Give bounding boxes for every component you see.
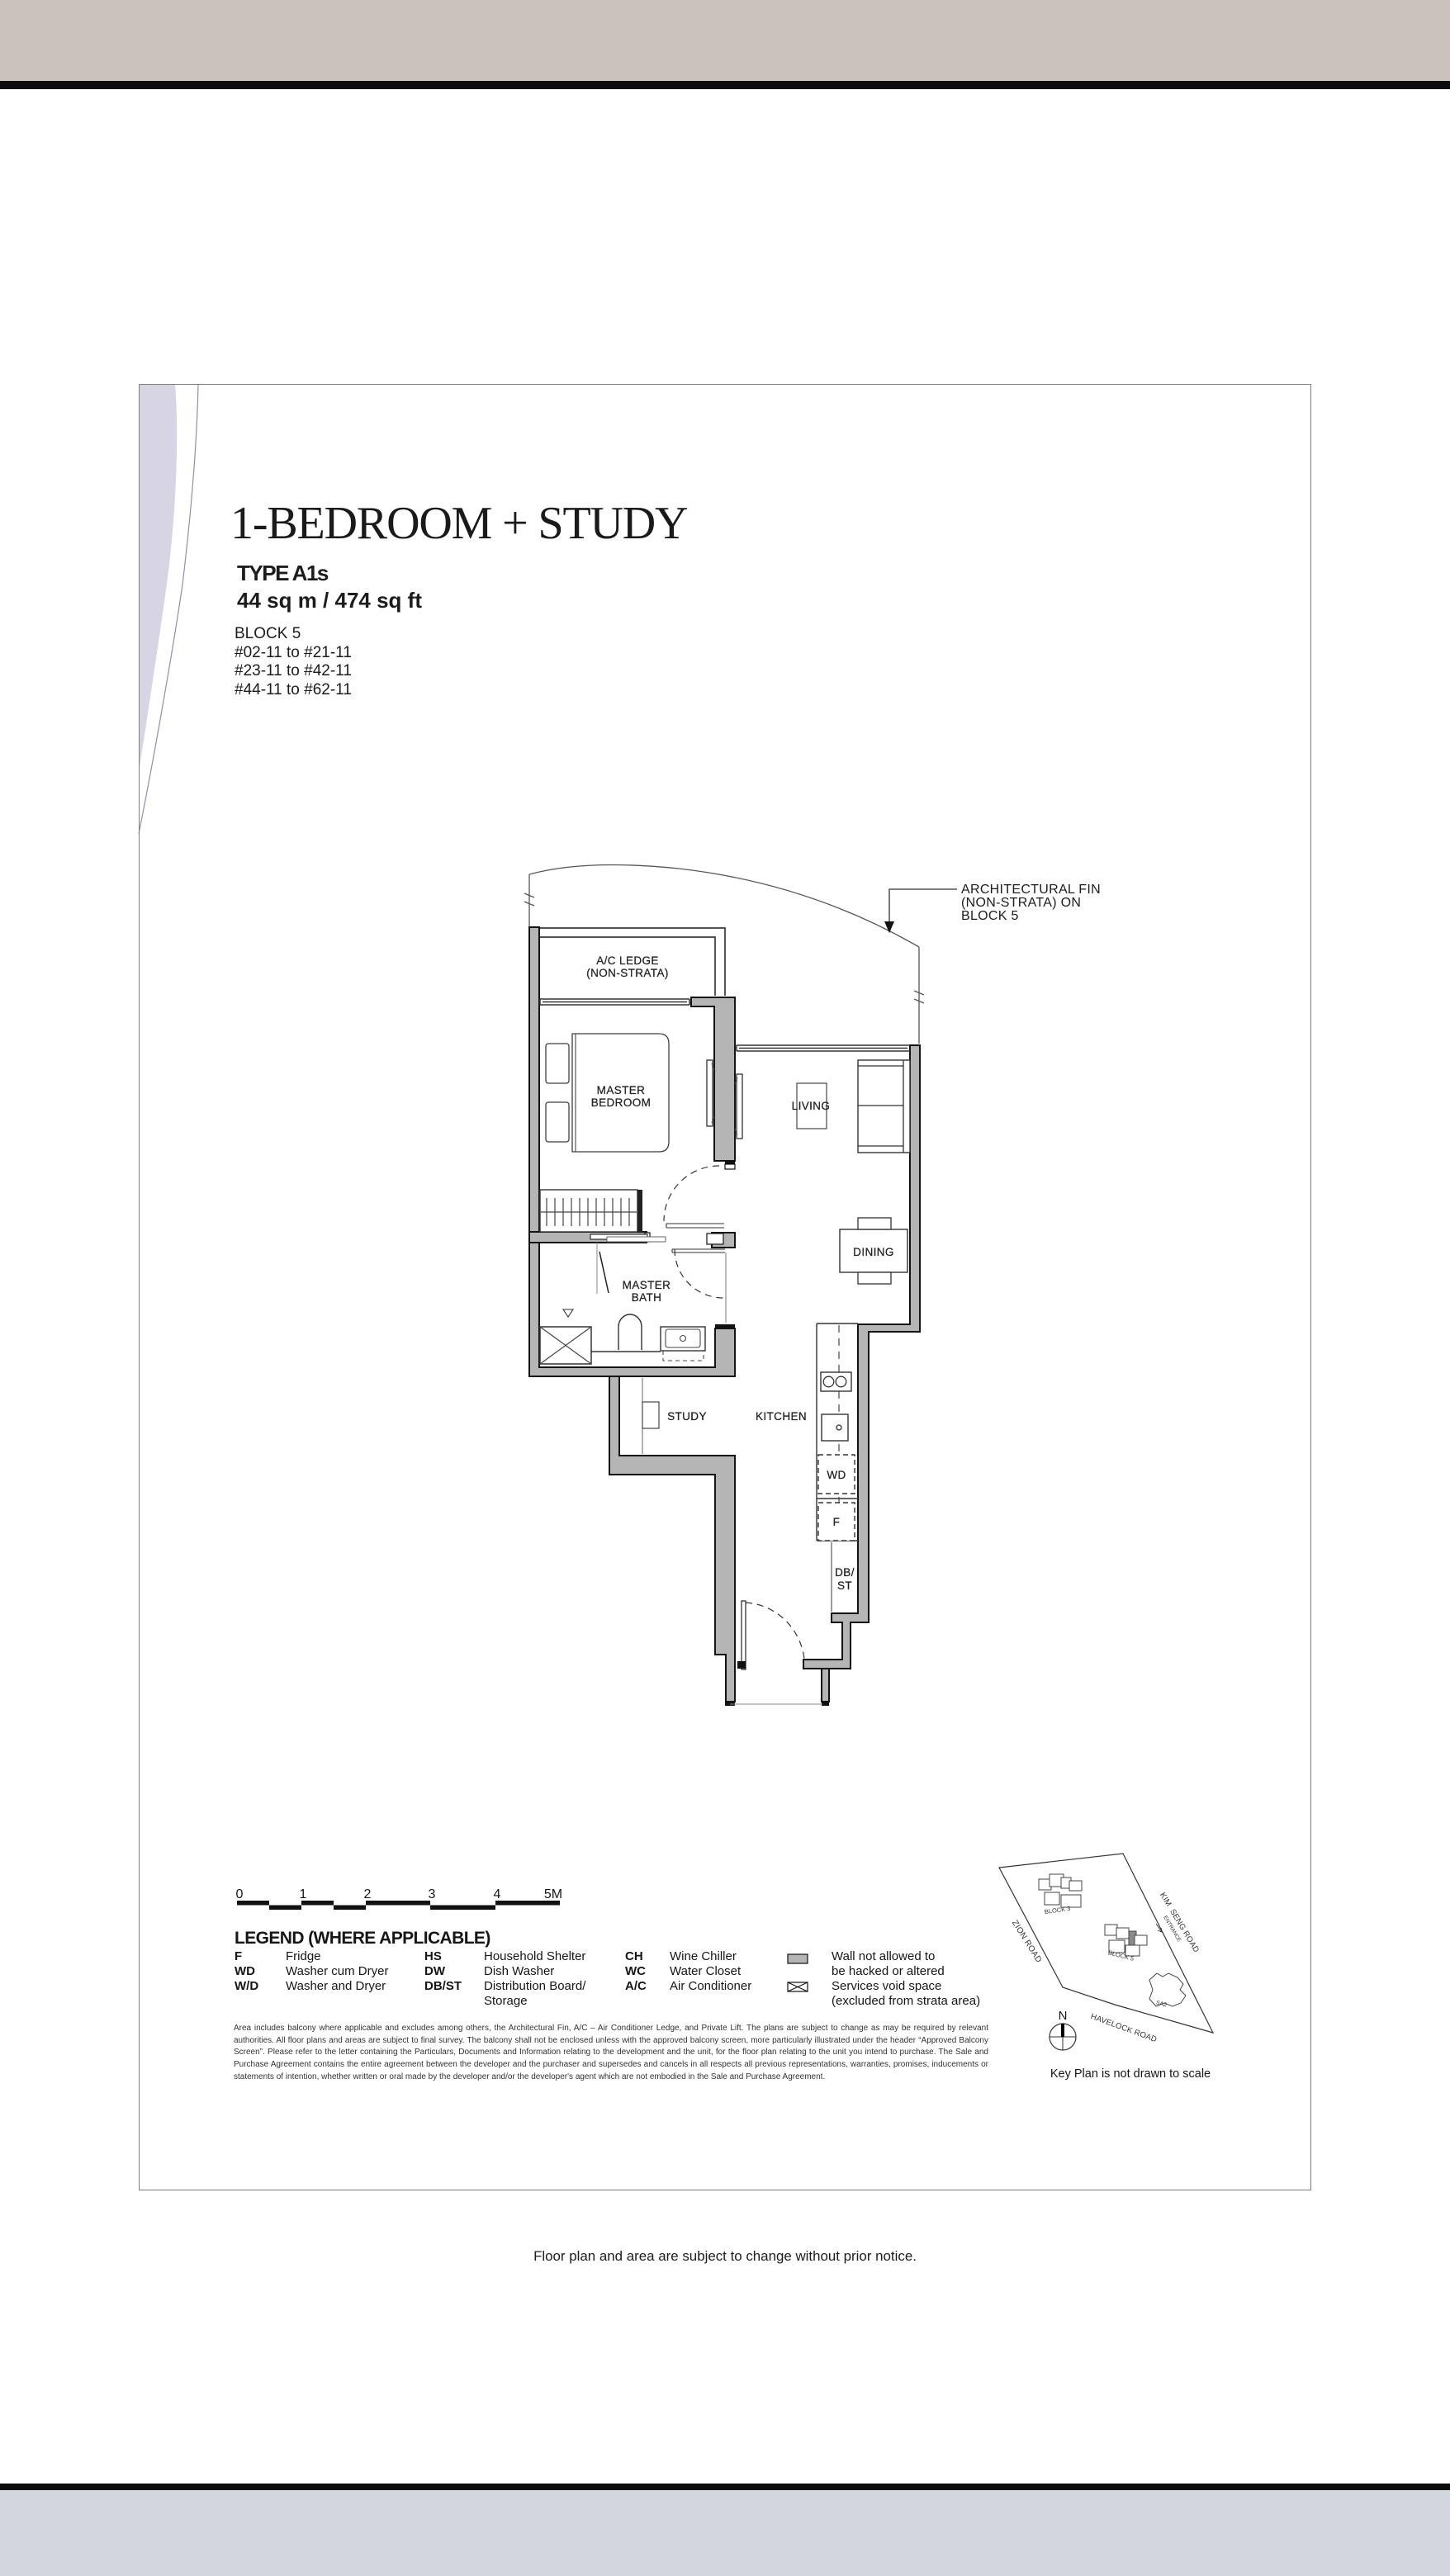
svg-text:1: 1 xyxy=(300,1887,307,1901)
svg-text:5M: 5M xyxy=(544,1887,562,1901)
svg-text:HAVELOCK ROAD: HAVELOCK ROAD xyxy=(1089,2012,1158,2044)
svg-text:BLOCK 5: BLOCK 5 xyxy=(961,909,1019,923)
svg-text:N: N xyxy=(1059,2009,1068,2023)
svg-text:DB/: DB/ xyxy=(835,1566,855,1579)
svg-text:3: 3 xyxy=(429,1887,436,1901)
svg-text:(NON-STRATA) ON: (NON-STRATA) ON xyxy=(961,896,1081,910)
svg-text:KIM SENG ROAD: KIM SENG ROAD xyxy=(1158,1891,1201,1954)
svg-text:4: 4 xyxy=(494,1887,501,1901)
svg-text:BEDROOM: BEDROOM xyxy=(591,1096,652,1109)
svg-text:Key Plan is not drawn to scale: Key Plan is not drawn to scale xyxy=(1050,2067,1211,2081)
svg-text:0: 0 xyxy=(236,1887,244,1901)
svg-text:BATH: BATH xyxy=(632,1291,662,1304)
svg-text:(NON-STRATA): (NON-STRATA) xyxy=(586,967,669,979)
svg-text:ST: ST xyxy=(837,1579,852,1592)
svg-text:SA2: SA2 xyxy=(1155,2001,1168,2009)
svg-text:2: 2 xyxy=(364,1887,372,1901)
svg-text:LIVING: LIVING xyxy=(792,1100,831,1112)
svg-text:WD: WD xyxy=(827,1469,846,1481)
svg-text:KITCHEN: KITCHEN xyxy=(756,1410,807,1423)
svg-text:A/C LEDGE: A/C LEDGE xyxy=(596,954,659,967)
svg-text:ARCHITECTURAL FIN: ARCHITECTURAL FIN xyxy=(961,883,1101,897)
svg-text:MASTER: MASTER xyxy=(623,1279,671,1291)
svg-text:BLOCK 3: BLOCK 3 xyxy=(1044,1905,1071,1915)
svg-text:DINING: DINING xyxy=(853,1246,894,1258)
svg-text:F: F xyxy=(833,1516,841,1528)
svg-text:MASTER: MASTER xyxy=(597,1084,646,1096)
svg-text:STUDY: STUDY xyxy=(667,1410,707,1423)
